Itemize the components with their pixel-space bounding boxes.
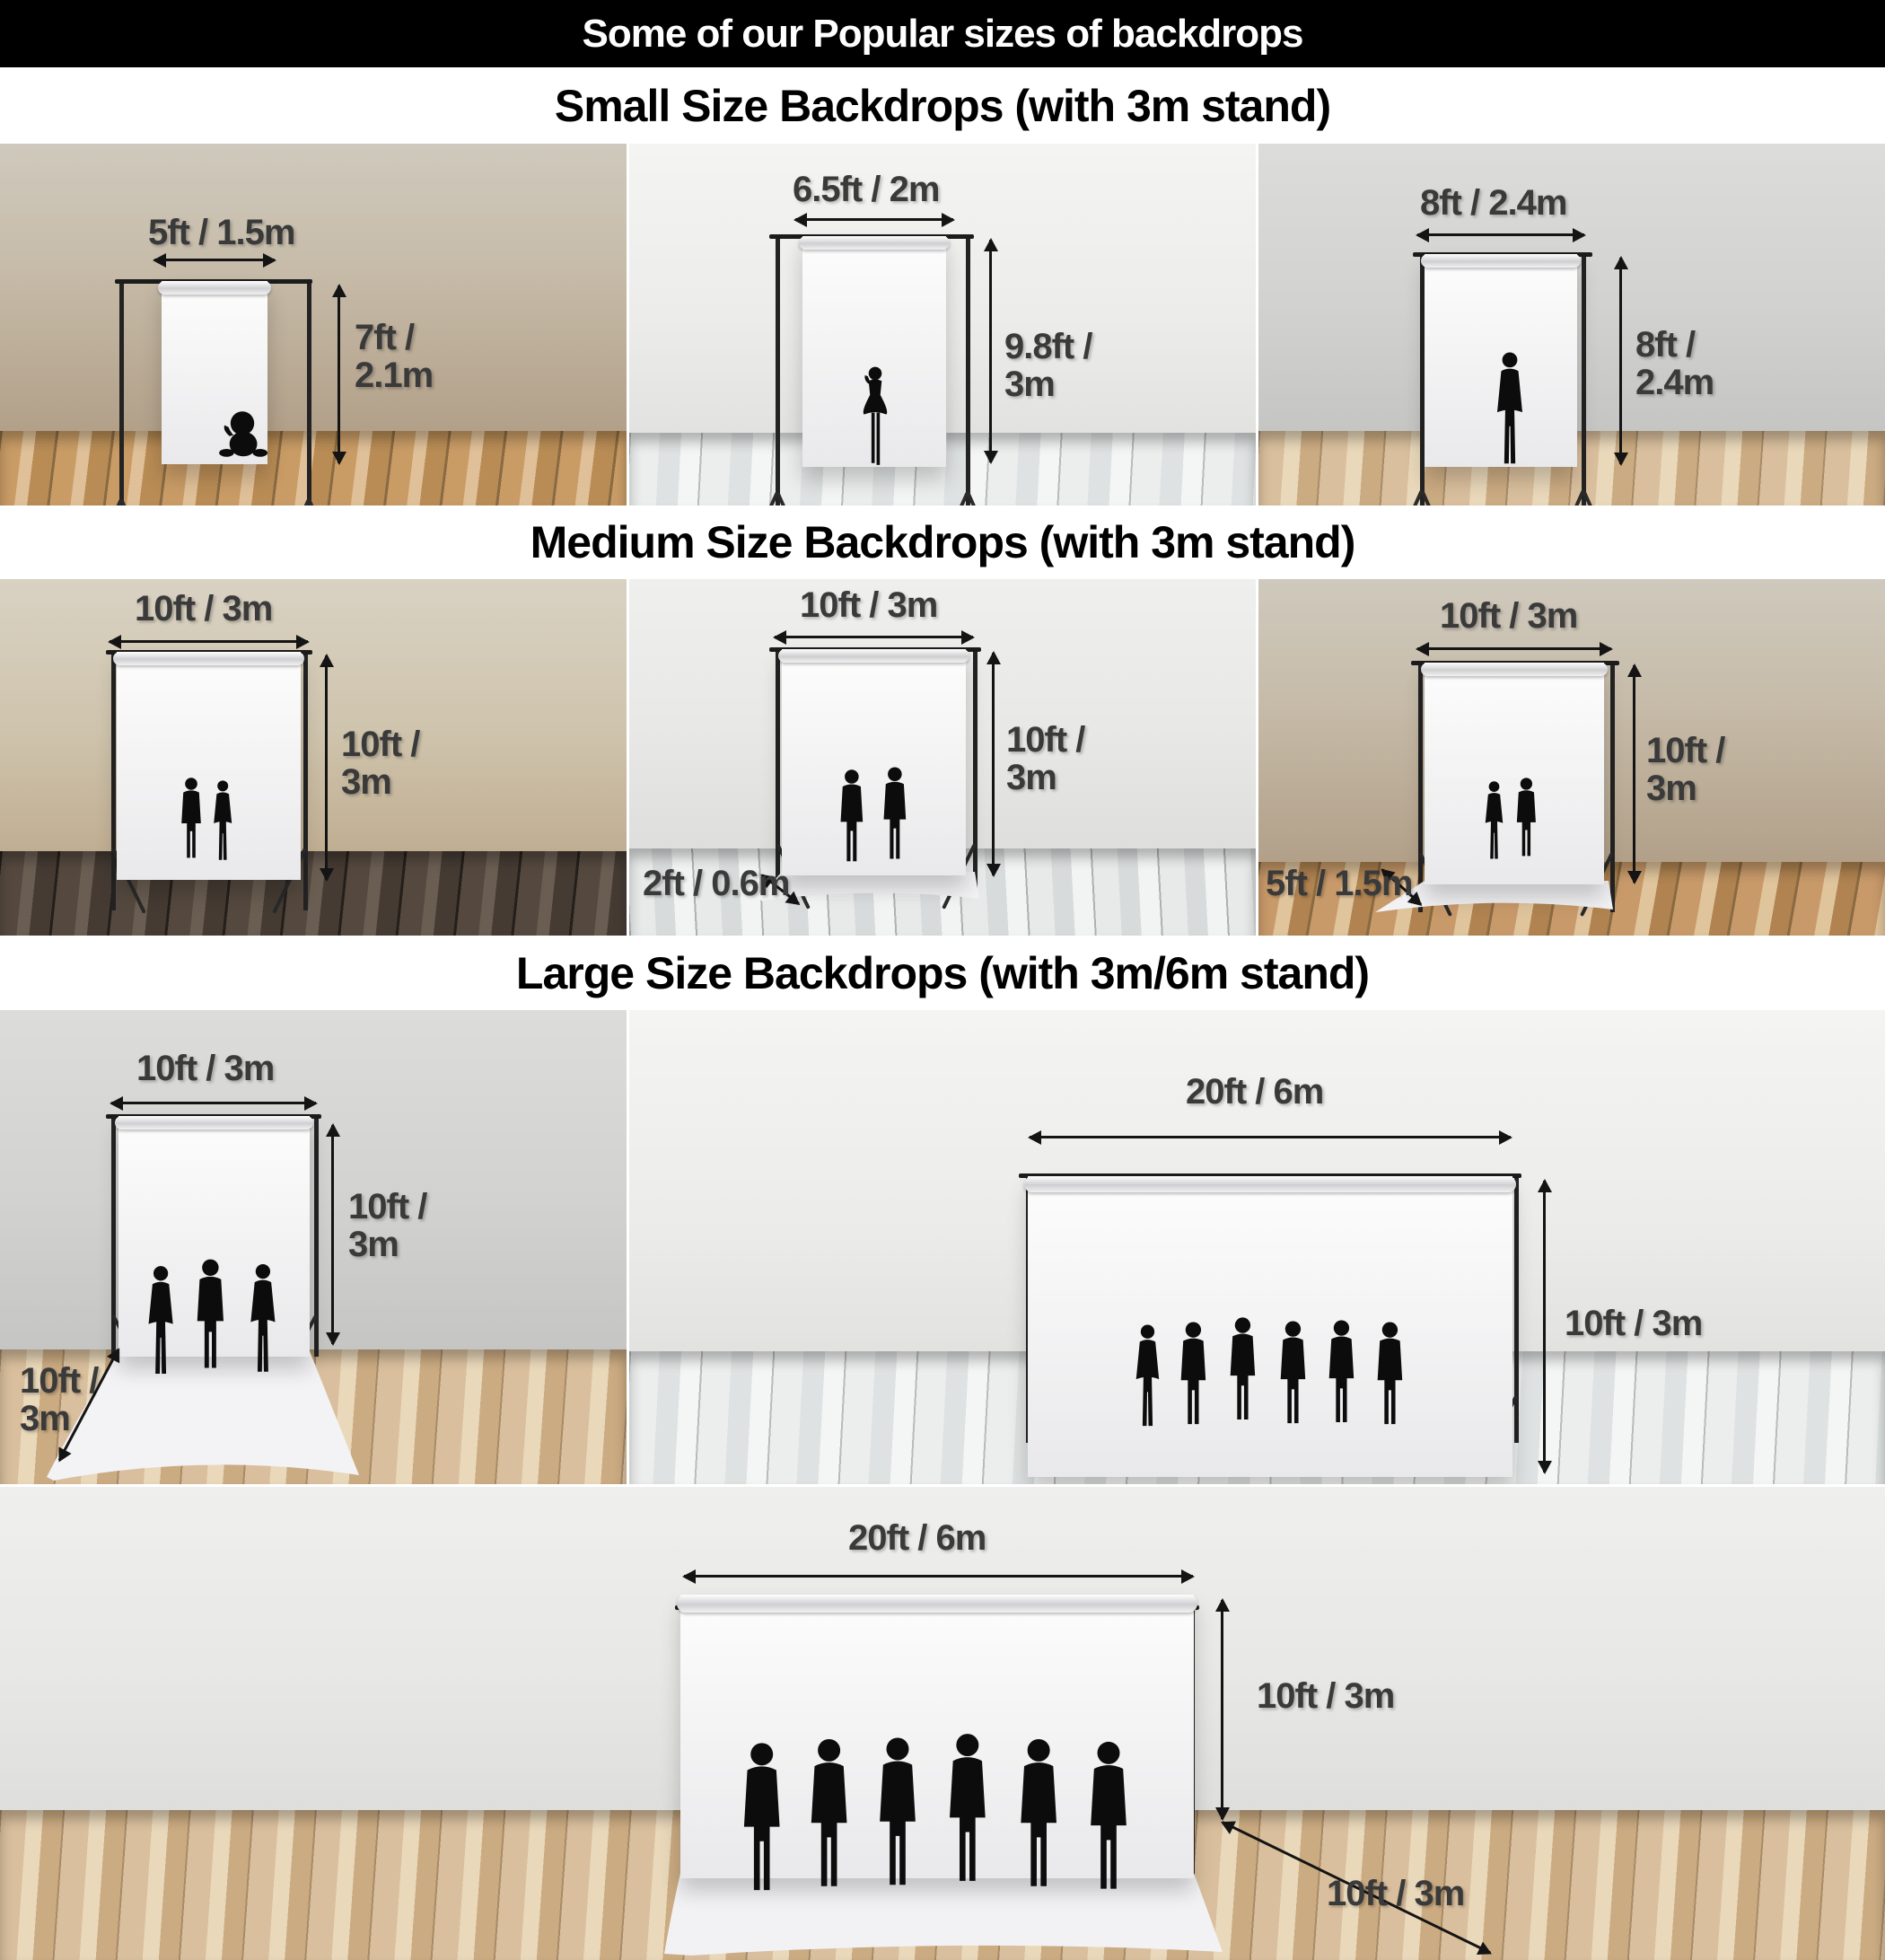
width-arrow — [1417, 647, 1611, 650]
height-label: 10ft / 3m — [348, 1188, 426, 1264]
section-title-small: Small Size Backdrops (with 3m stand) — [0, 67, 1885, 144]
height-arrow — [1633, 665, 1635, 883]
three-business-people-silhouette — [136, 1218, 287, 1414]
stand-pole-right — [307, 279, 311, 505]
stand-pole-left — [111, 650, 116, 910]
panel-medium-3: 10ft / 3m 10ft / 3m 5ft / 1.5m — [1258, 579, 1885, 936]
height-arrow — [325, 655, 328, 880]
sweep-label: 5ft / 1.5m — [1266, 865, 1412, 902]
girl-silhouette — [852, 359, 899, 485]
backdrop-roll — [799, 236, 950, 250]
posing-woman-silhouette — [1485, 338, 1535, 485]
panel-medium-1: 10ft / 3m 10ft / 3m — [0, 579, 627, 936]
baby-silhouette — [213, 409, 272, 459]
height-label: 8ft / 2.4m — [1635, 326, 1714, 402]
width-arrow — [110, 640, 308, 643]
panel-large-2: 20ft / 6m 10ft / 3m — [629, 1010, 1885, 1484]
stand-pole-right — [303, 650, 308, 910]
stand-pole-left — [776, 647, 780, 894]
header-bar: Some of our Popular sizes of backdrops — [0, 0, 1885, 67]
six-men-silhouette — [729, 1702, 1151, 1920]
panel-large-3: 20ft / 6m 10ft / 3m 10ft / 3m — [0, 1487, 1885, 1960]
sweep-label: 10ft / 3m — [1327, 1875, 1464, 1912]
width-arrow — [795, 218, 953, 221]
width-arrow — [775, 636, 973, 638]
backdrop-roll — [1024, 1176, 1516, 1192]
couple-silhouette — [173, 734, 245, 906]
width-label: 10ft / 3m — [135, 590, 272, 628]
stand-pole-left — [119, 279, 124, 505]
width-arrow — [154, 259, 275, 261]
floor — [0, 431, 627, 505]
section-title-small-text: Small Size Backdrops (with 3m stand) — [555, 80, 1330, 132]
width-label: 5ft / 1.5m — [148, 214, 294, 251]
width-label: 8ft / 2.4m — [1420, 184, 1566, 222]
height-label: 7ft / 2.1m — [355, 319, 433, 395]
page-title: Some of our Popular sizes of backdrops — [582, 12, 1302, 57]
wall — [0, 1010, 627, 1349]
backdrop-roll — [158, 281, 271, 294]
panel-small-3: 8ft / 2.4m 8ft / 2.4m — [1258, 144, 1885, 505]
width-arrow — [684, 1575, 1193, 1578]
backdrop-roll — [1421, 663, 1608, 676]
sweep-label: 10ft / 3m — [20, 1362, 98, 1438]
width-arrow — [111, 1102, 316, 1104]
panel-large-1: 10ft / 3m 10ft / 3m 10ft / 3m — [0, 1010, 627, 1484]
stand-pole-right — [966, 234, 970, 505]
width-label: 20ft / 6m — [1186, 1073, 1323, 1111]
stand-pole-right — [973, 647, 978, 894]
stand-pole-right — [1582, 252, 1586, 505]
two-men-silhouette — [831, 732, 917, 899]
backdrop-roll — [677, 1595, 1197, 1613]
backdrop-roll — [115, 1116, 313, 1129]
backdrop-size-infographic: Some of our Popular sizes of backdrops S… — [0, 0, 1885, 1960]
height-arrow — [331, 1125, 334, 1344]
backdrop-roll — [778, 649, 969, 663]
height-arrow — [338, 286, 340, 463]
height-label: 10ft / 3m — [1257, 1677, 1394, 1715]
height-label: 10ft / 3m — [1565, 1305, 1702, 1342]
width-label: 10ft / 3m — [1440, 597, 1577, 635]
floor — [0, 851, 627, 936]
backdrop-roll — [1421, 254, 1581, 268]
couple-silhouette — [1477, 732, 1547, 906]
width-arrow — [1417, 233, 1584, 236]
height-arrow — [1543, 1181, 1546, 1472]
panel-small-2: 6.5ft / 2m 9.8ft / 3m — [629, 144, 1256, 505]
stand-pole-left — [776, 234, 780, 505]
height-arrow — [1221, 1600, 1223, 1819]
wall — [0, 144, 627, 431]
stand-pole-left — [1418, 661, 1423, 912]
panel-small-1: 5ft / 1.5m 7ft / 2.1m — [0, 144, 627, 505]
section-title-large-text: Large Size Backdrops (with 3m/6m stand) — [516, 947, 1369, 999]
height-label: 9.8ft / 3m — [1004, 328, 1092, 404]
height-label: 10ft / 3m — [341, 725, 419, 802]
sweep-label: 2ft / 0.6m — [643, 865, 789, 902]
height-label: 10ft / 3m — [1646, 732, 1724, 808]
width-label: 6.5ft / 2m — [793, 171, 939, 208]
width-label: 20ft / 6m — [848, 1519, 986, 1557]
height-arrow — [992, 653, 995, 875]
width-arrow — [1030, 1136, 1511, 1138]
height-arrow — [989, 240, 992, 462]
panel-medium-2: 10ft / 3m 10ft / 3m 2ft / 0.6m — [629, 579, 1256, 936]
section-title-large: Large Size Backdrops (with 3m/6m stand) — [0, 936, 1885, 1010]
backdrop-roll — [113, 652, 304, 665]
height-arrow — [1619, 258, 1622, 464]
stand-pole-right — [1610, 661, 1615, 912]
height-label: 10ft / 3m — [1006, 721, 1084, 797]
section-title-medium-text: Medium Size Backdrops (with 3m stand) — [530, 516, 1355, 568]
width-label: 10ft / 3m — [800, 586, 937, 624]
section-title-medium: Medium Size Backdrops (with 3m stand) — [0, 505, 1885, 579]
width-label: 10ft / 3m — [136, 1050, 274, 1087]
six-people-silhouette — [1125, 1269, 1417, 1473]
wall — [0, 579, 627, 851]
